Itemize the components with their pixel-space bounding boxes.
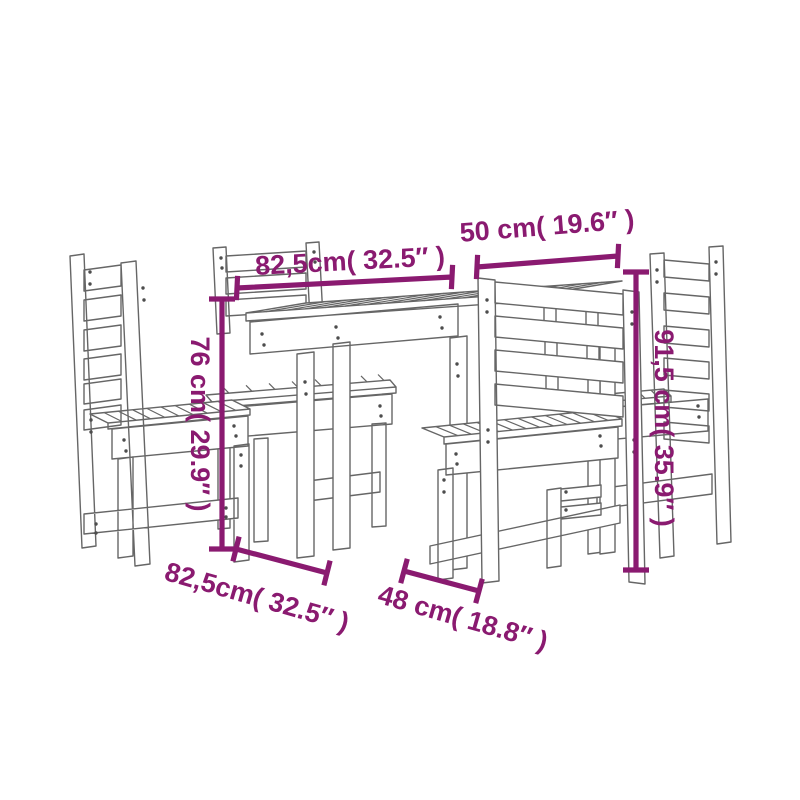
dimension-label-chair-height: 91,5 cm( 35.9″ ) (649, 329, 679, 527)
chair-front-right-battens (544, 307, 600, 394)
dimension-label-table-height: 76 cm( 29.9″ ) (185, 336, 215, 511)
dining-set-diagram: 82,5cm( 32.5″ ) 50 cm( 19.6″ ) 76 cm( 29… (0, 0, 800, 800)
dimension-label-tabletop-depth: 50 cm( 19.6″ ) (459, 204, 636, 248)
dimension-label-chair-depth: 82,5cm( 32.5″ ) (162, 556, 353, 637)
dimension-label-tabletop-length: 82,5cm( 32.5″ ) (254, 241, 445, 281)
chair-front-right-base (422, 410, 622, 580)
product-dimension-image: 82,5cm( 32.5″ ) 50 cm( 19.6″ ) 76 cm( 29… (0, 0, 800, 800)
dimension-tabletop-depth: 50 cm( 19.6″ ) (459, 204, 636, 279)
dimension-line (476, 244, 618, 279)
dimension-chair-depth: 82,5cm( 32.5″ ) (162, 537, 353, 638)
dimension-chair-width: 48 cm( 18.8″ ) (375, 559, 552, 657)
dimension-label-chair-width: 48 cm( 18.8″ ) (375, 579, 552, 656)
